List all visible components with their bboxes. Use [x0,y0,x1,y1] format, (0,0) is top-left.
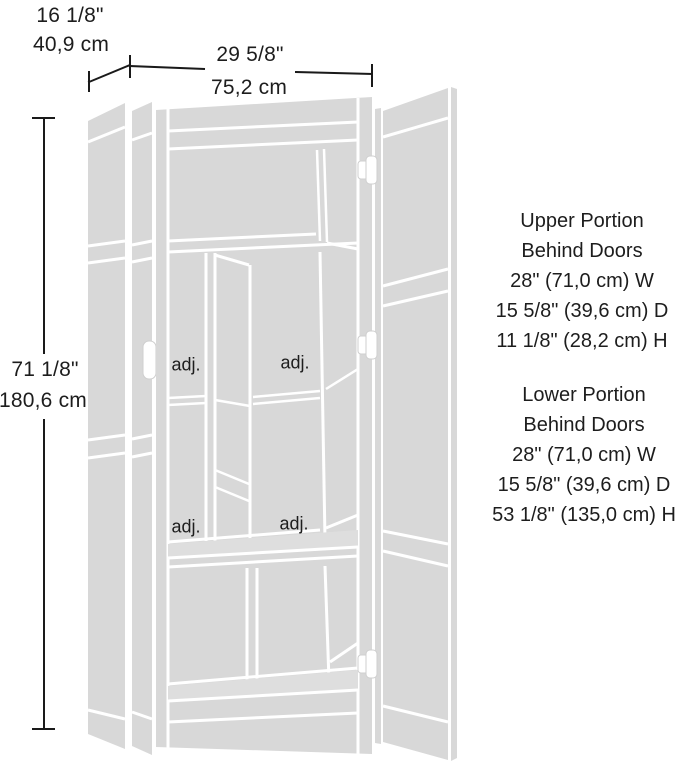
overall-width-metric-label: 75,2 cm [211,76,287,100]
door-width-dimension-line [89,56,130,91]
adjustable-shelf-label: adj. [280,353,309,374]
upper-portion-depth: 15 5/8" (39,6 cm) D [496,296,669,326]
door-width-metric-label: 40,9 cm [33,33,109,57]
overall-height-imperial-label: 71 1/8" [11,358,78,382]
door-handle-icon [143,341,156,379]
upper-portion-subtitle: Behind Doors [496,236,669,266]
lower-portion-subtitle: Behind Doors [492,410,676,440]
left-door [88,102,156,755]
door-width-imperial-label: 16 1/8" [36,4,103,28]
upper-portion-height: 11 1/8" (28,2 cm) H [496,326,669,356]
adjustable-shelf-label: adj. [171,517,200,538]
adjustable-shelf-label: adj. [279,514,308,535]
upper-portion-title: Upper Portion [496,206,669,236]
dimension-diagram: 16 1/8" 40,9 cm 29 5/8" 75,2 cm 71 1/8" … [0,0,679,766]
lower-portion-width: 28" (71,0 cm) W [492,440,676,470]
lower-portion-depth: 15 5/8" (39,6 cm) D [492,470,676,500]
lower-portion-height: 53 1/8" (135,0 cm) H [492,500,676,530]
lower-portion-info: Lower Portion Behind Doors 28" (71,0 cm)… [492,380,676,530]
cabinet-body [156,97,372,754]
overall-height-dimension-line [33,118,54,729]
overall-width-imperial-label: 29 5/8" [216,43,283,67]
right-door [375,87,457,761]
upper-portion-info: Upper Portion Behind Doors 28" (71,0 cm)… [496,206,669,356]
adjustable-shelf-label: adj. [171,355,200,376]
lower-portion-title: Lower Portion [492,380,676,410]
upper-portion-width: 28" (71,0 cm) W [496,266,669,296]
overall-height-metric-label: 180,6 cm [0,389,87,413]
